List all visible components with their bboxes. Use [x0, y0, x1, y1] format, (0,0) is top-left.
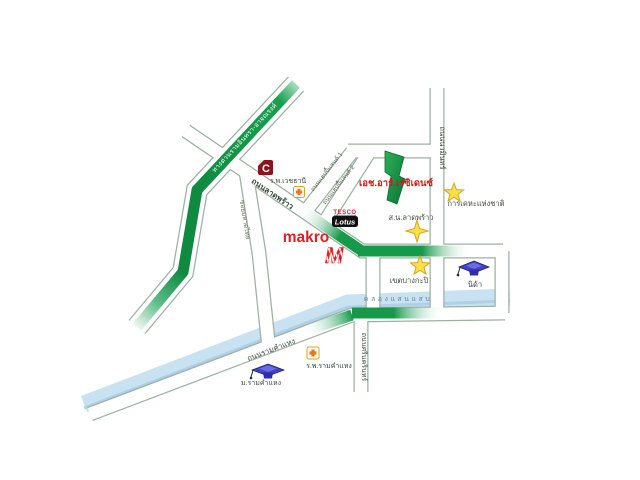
lotus-wordmark: Lotus [335, 218, 355, 227]
ram-cap-tassel-tip [250, 377, 253, 380]
c-mall-logo: C [258, 160, 273, 175]
residence-label: เอช.อาร์.เรซิเดนซ์ [359, 177, 434, 189]
map-svg: C TESCO Lotus makro M ทางด่วนรามอินทรา-อ… [0, 0, 640, 480]
latphrao-police-label: ส.น.ลาดพร้าว [389, 213, 434, 222]
tesco-dashes [334, 215, 356, 216]
tesco-lotus-logo: TESCO Lotus [332, 210, 358, 227]
police-star-icon [406, 220, 428, 242]
srinakarin-road-label: ถนนศรีนครินทร์ [360, 333, 368, 382]
ram-cap-tassel [251, 371, 253, 378]
c-logo-letter: C [262, 163, 270, 175]
nawamin-road-label: ถนนนวมินทร์ [438, 126, 447, 169]
nida-cap-tassel-tip [457, 274, 460, 277]
makro-m-icon: M [325, 243, 344, 268]
makro-wordmark: makro [283, 229, 330, 246]
bangkapi-star-icon [411, 256, 430, 274]
route-expressway-end [137, 272, 183, 327]
bangkapi-district-label: เขตบางกะปิ [390, 276, 429, 285]
national-housing-label: การเคหะแห่งชาติ [448, 199, 505, 208]
map-canvas: C TESCO Lotus makro M ทางด่วนรามอินทรา-อ… [0, 0, 640, 480]
nida-cap-tassel [458, 268, 460, 275]
nida-cap-icon [457, 261, 489, 276]
ram-hospital-label: ร.พ.รามคำแหง [306, 362, 352, 370]
nida-label: นิด้า [468, 280, 482, 289]
ram-university-label: ม.รามคำแหง [241, 379, 281, 387]
road-ramkhamhaeng-casing [90, 313, 505, 414]
ram-university-cap-icon [250, 364, 284, 379]
vejthani-hospital-label: ร.พ.เวชธานี [270, 177, 307, 185]
nida-cap-base [469, 270, 479, 276]
canal-label: คลองแสนแสบ [364, 296, 432, 303]
ram-cap-base [263, 373, 273, 379]
vejthani-cross-icon [294, 187, 305, 198]
ram-hospital-cross-icon [307, 347, 319, 359]
